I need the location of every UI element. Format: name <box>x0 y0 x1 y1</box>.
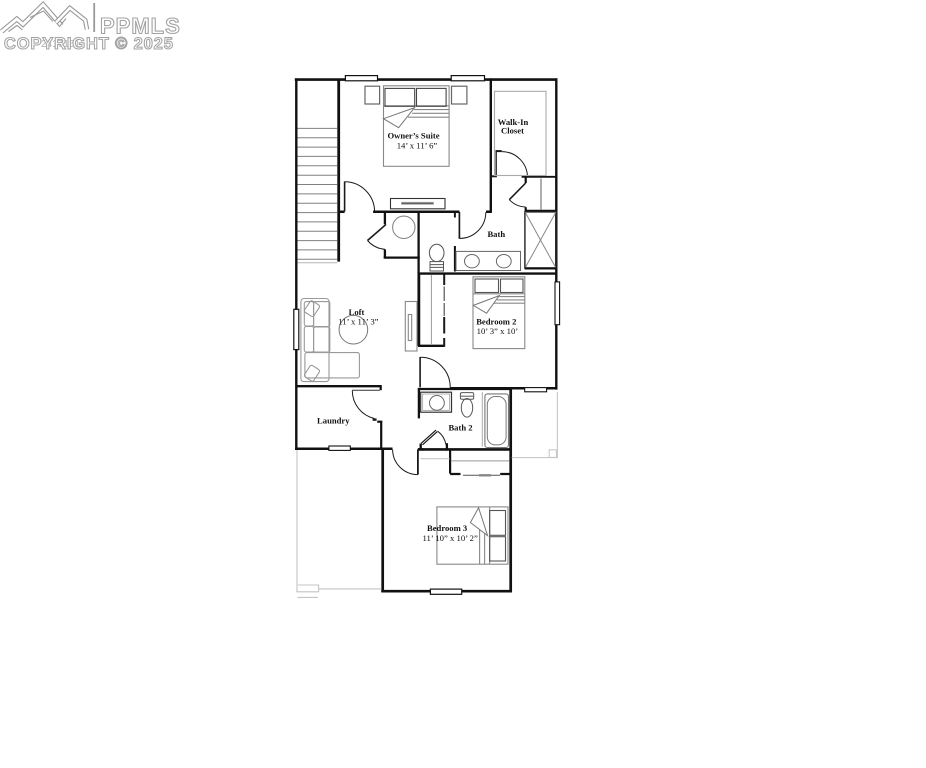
svg-text:Bath 2: Bath 2 <box>448 422 472 432</box>
svg-text:11’ 10” x 10’ 2”: 11’ 10” x 10’ 2” <box>423 533 478 543</box>
svg-text:Owner’s Suite: Owner’s Suite <box>387 131 439 141</box>
svg-text:Laundry: Laundry <box>317 416 350 426</box>
svg-text:11’ x 11’ 3”: 11’ x 11’ 3” <box>338 316 378 326</box>
svg-text:10’ 3” x 10’: 10’ 3” x 10’ <box>477 326 519 336</box>
svg-text:Bedroom 3: Bedroom 3 <box>427 523 467 533</box>
svg-text:Bedroom 2: Bedroom 2 <box>476 316 516 326</box>
svg-text:14’ x 11’ 6”: 14’ x 11’ 6” <box>397 140 438 150</box>
svg-text:Closet: Closet <box>501 126 524 136</box>
svg-text:COPYRIGHT © 2025: COPYRIGHT © 2025 <box>4 35 174 53</box>
svg-text:Bath: Bath <box>487 229 505 239</box>
